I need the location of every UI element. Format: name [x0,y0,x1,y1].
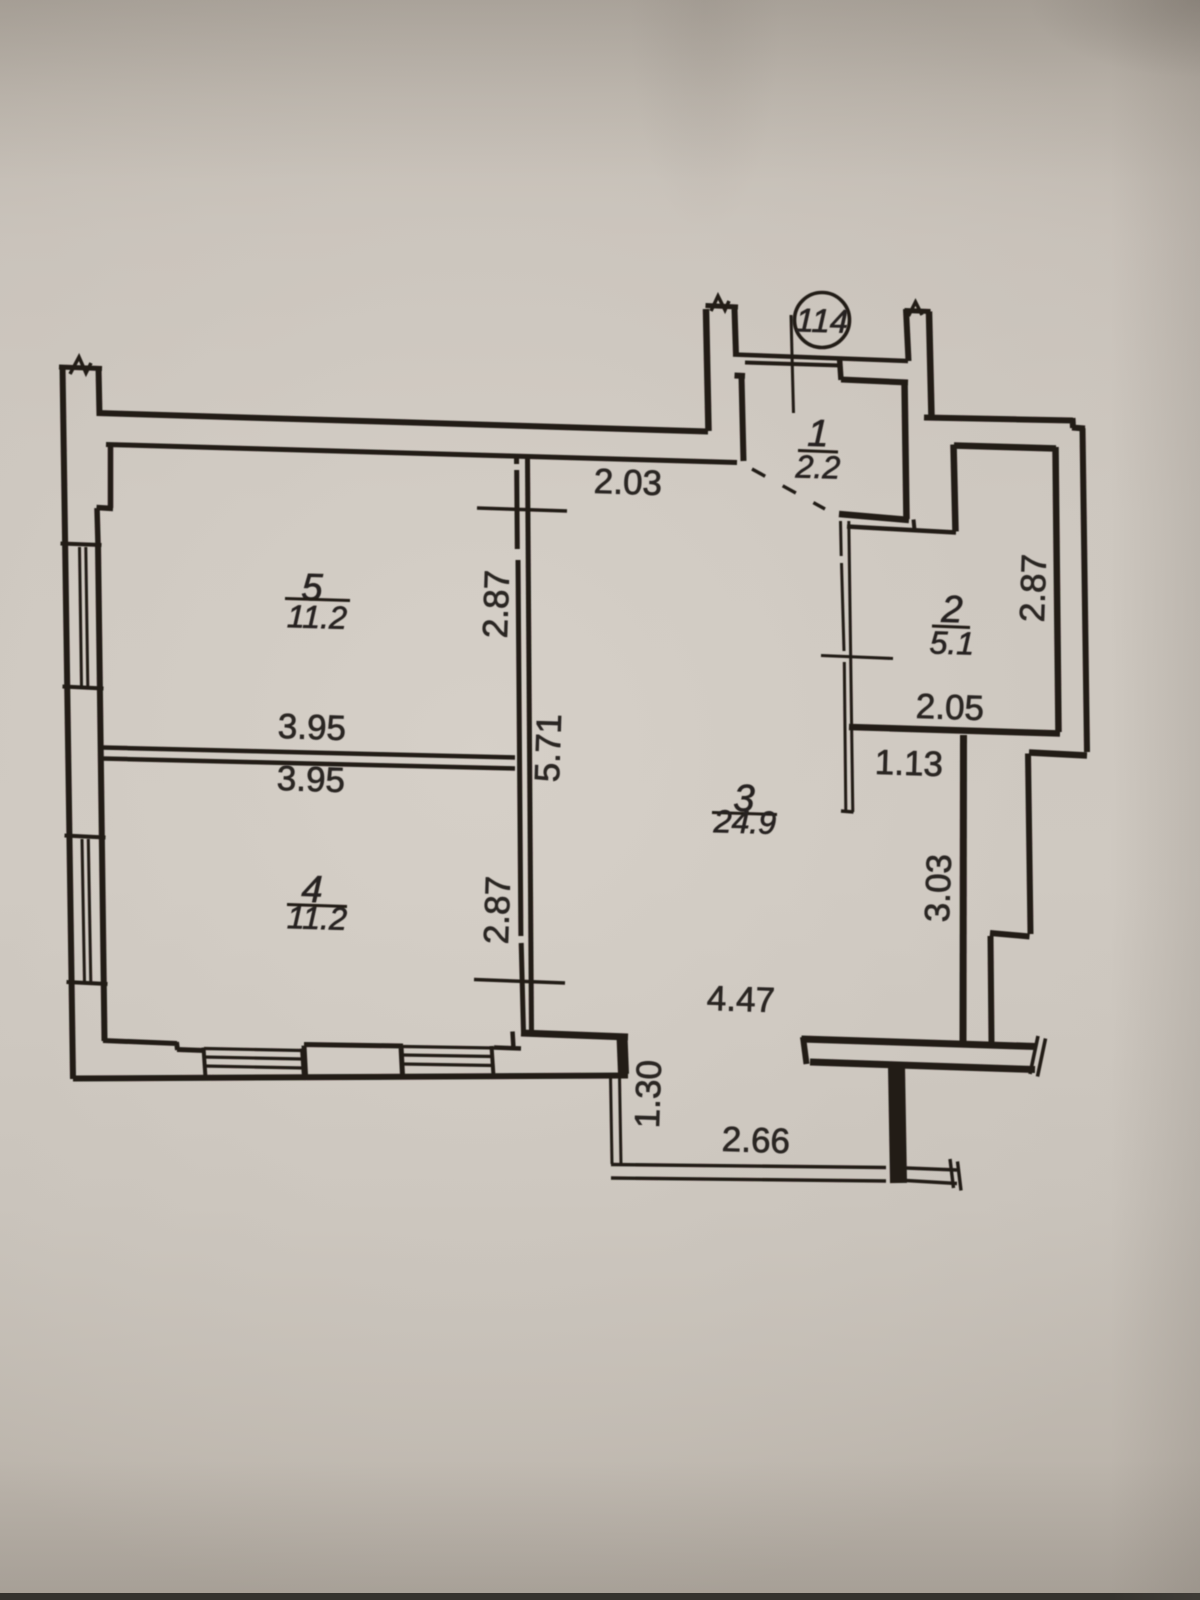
svg-text:2.03: 2.03 [593,462,662,503]
svg-text:2.87: 2.87 [477,875,518,944]
svg-text:5.1: 5.1 [929,624,974,661]
svg-text:2.2: 2.2 [794,448,841,485]
svg-text:3.03: 3.03 [918,853,959,922]
svg-text:24.9: 24.9 [712,803,776,841]
svg-text:1.30: 1.30 [628,1059,669,1128]
svg-text:4.47: 4.47 [706,979,775,1020]
svg-text:114: 114 [795,301,849,339]
svg-text:11.2: 11.2 [287,899,348,937]
svg-text:3.95: 3.95 [276,759,345,800]
svg-text:1.13: 1.13 [874,743,943,784]
svg-text:5.71: 5.71 [528,713,569,782]
svg-text:3.95: 3.95 [277,707,346,748]
svg-text:2.66: 2.66 [721,1120,790,1161]
svg-text:2.87: 2.87 [476,569,517,638]
svg-text:11.2: 11.2 [287,598,348,636]
svg-text:2.05: 2.05 [915,687,984,728]
svg-text:2.87: 2.87 [1013,553,1054,622]
